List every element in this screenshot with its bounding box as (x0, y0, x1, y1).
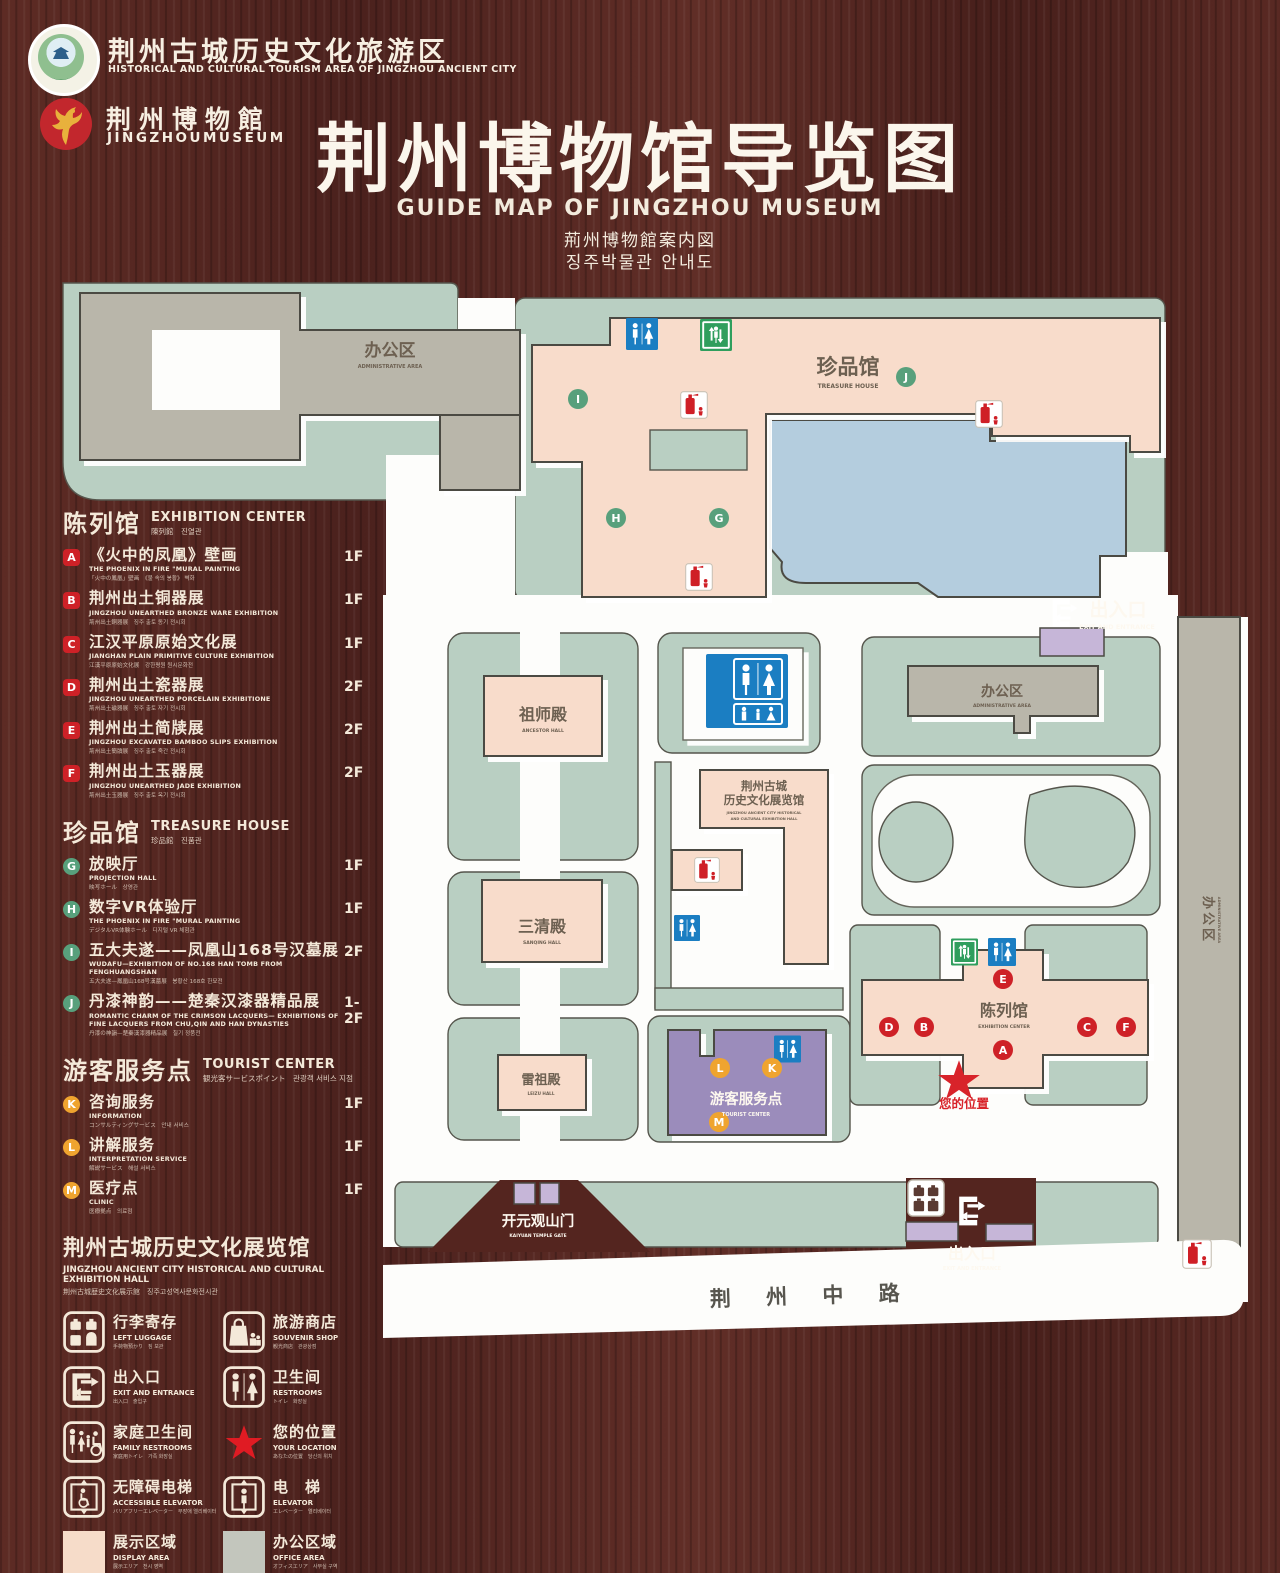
item-floor: 2F (344, 679, 378, 695)
svg-text:SANQING HALL: SANQING HALL (523, 940, 561, 946)
item-floor: 1F (344, 592, 378, 608)
icon-label-sub: 手荷物預かり 짐 보관 (113, 1343, 177, 1350)
legend-icon-item: 出入口 EXIT AND ENTRANCE 出入口 출입구 (63, 1366, 223, 1408)
gate-pillar (514, 1183, 535, 1204)
legend-item: A 《火中的凤凰》壁画 THE PHOENIX IN FIRE "MURAL P… (63, 547, 378, 582)
section-title-sub: 陳列館 진열관 (151, 526, 306, 537)
legend-item: D 荆州出土瓷器展 JINGZHOU UNEARTHED PORCELAIN E… (63, 677, 378, 712)
icon-label-en: DISPLAY AREA (113, 1554, 177, 1562)
item-name-cn: 荆州出土简牍展 (89, 720, 344, 736)
legend-icon-item: 展示区域 DISPLAY AREA 展示エリア 전시 영역 (63, 1531, 223, 1573)
svg-text:办公区: 办公区 (365, 340, 416, 361)
restroom-icon (774, 1036, 801, 1063)
map-badge-letter: C (1083, 1021, 1091, 1034)
item-floor: 2F (344, 765, 378, 781)
legend-icon-item: 电 梯 ELEVATOR エレベーター 엘리베이터 (223, 1476, 375, 1518)
item-name-sub: 荊州出土銅器展 징주 출토 동기 전시회 (89, 618, 344, 626)
restroom-icon (223, 1366, 265, 1408)
garden-island (879, 802, 953, 882)
svg-text:ADMINISTRATIVE AREA: ADMINISTRATIVE AREA (1217, 897, 1221, 944)
item-name-sub: 五大夫遂—鳳凰山168号漢墓展 봉황산 168호 한묘전 (89, 977, 344, 985)
item-letter-badge: L (63, 1139, 80, 1156)
legend-icon-item: 家庭卫生间 FAMILY RESTROOMS 家庭用トイレ 가족 화장실 (63, 1421, 223, 1463)
page-subtitle-ko: 징주박물관 안내도 (250, 248, 1030, 273)
section-title: 游客服务点 TOURIST CENTER 観光客サービスポイント 관광객 서비스… (63, 1051, 378, 1086)
item-name-sub: コンサルティングサービス 안내 서비스 (89, 1121, 344, 1129)
item-name-en: JIANGHAN PLAIN PRIMITIVE CULTURE EXHIBIT… (89, 652, 344, 660)
svg-text:珍品馆: 珍品馆 (817, 355, 880, 379)
svg-text:游客服务点: 游客服务点 (710, 1090, 783, 1108)
svg-text:EXIT AND ENTRANCE: EXIT AND ENTRANCE (1079, 623, 1155, 631)
svg-text:TOURIST CENTER: TOURIST CENTER (722, 1112, 770, 1118)
legend-item: G 放映厅 PROJECTION HALL 映写ホール 상영관 1F (63, 856, 378, 891)
item-name-sub: 荊州出土玉器展 징주 출토 옥기 전시회 (89, 791, 344, 799)
museum-logo (40, 98, 92, 150)
item-name-en: PROJECTION HALL (89, 874, 344, 882)
legend-item: L 讲解服务 INTERPRETATION SERVICE 解説サービス 해설 … (63, 1137, 378, 1172)
grounds-strip (655, 988, 843, 1010)
legend-item: J 丹漆神韵——楚秦汉漆器精品展 ROMANTIC CHARM OF THE C… (63, 993, 378, 1036)
svg-text:ADMINISTRATIVE AREA: ADMINISTRATIVE AREA (358, 364, 423, 370)
legend-item: E 荆州出土简牍展 JINGZHOU EXCAVATED BAMBOO SLIP… (63, 720, 378, 755)
exit-structure (906, 1222, 958, 1241)
legend-panel: 陈列馆 EXHIBITION CENTER 陳列館 진열관 A 《火中的凤凰》壁… (63, 504, 378, 1573)
grounds-strip (655, 762, 671, 1008)
section-title-sub: 珍品館 진품관 (151, 835, 290, 846)
item-name-en: INFORMATION (89, 1112, 344, 1120)
icon-label-en: YOUR LOCATION (273, 1444, 337, 1452)
page-title: 荆州博物馆导览图 (250, 98, 1030, 207)
svg-text:陈列馆: 陈列馆 (980, 1001, 1028, 1020)
icon-label-cn: 卫生间 (273, 1366, 322, 1387)
item-name-en: INTERPRETATION SERVICE (89, 1155, 344, 1163)
item-name-cn: 医疗点 (89, 1180, 344, 1196)
item-name-cn: 五大夫遂——凤凰山168号汉墓展 (89, 942, 344, 958)
section-title-en: TOURIST CENTER (203, 1057, 335, 1072)
svg-text:祖师殿: 祖师殿 (518, 705, 568, 724)
display-icon (63, 1531, 105, 1573)
svg-text:出入口: 出入口 (1089, 598, 1146, 621)
item-floor: 1F (344, 549, 378, 565)
item-name-cn: 《火中的凤凰》壁画 (89, 547, 344, 563)
svg-text:三清殿: 三清殿 (518, 917, 567, 936)
left-luggage-icon (908, 1180, 944, 1216)
icon-label-sub: エレベーター 엘리베이터 (273, 1508, 331, 1515)
section-title-cn: 陈列馆 (63, 504, 141, 539)
item-floor: 1-2F (344, 995, 378, 1027)
icon-label-cn: 无障碍电梯 (113, 1476, 216, 1497)
item-letter-badge: D (63, 679, 80, 696)
item-name-en: THE PHOENIX IN FIRE "MURAL PAINTING (89, 917, 344, 925)
item-name-en: JINGZHOU EXCAVATED BAMBOO SLIPS EXHIBITI… (89, 738, 344, 746)
item-floor: 1F (344, 636, 378, 652)
legend-item: B 荆州出土铜器展 JINGZHOU UNEARTHED BRONZE WARE… (63, 590, 378, 625)
icon-label-sub: バリアフリーエレベーター 무장애 엘리베이터 (113, 1508, 216, 1515)
legend-icon-item: 办公区域 OFFICE AREA オフィスエリア 사무실 구역 (223, 1531, 375, 1573)
section-title: 陈列馆 EXHIBITION CENTER 陳列館 진열관 (63, 504, 378, 539)
family-icon (63, 1421, 105, 1463)
fire-extinguisher-icon (695, 858, 720, 883)
item-name-en: JINGZHOU UNEARTHED BRONZE WARE EXHIBITIO… (89, 609, 344, 617)
item-name-en: JINGZHOU UNEARTHED JADE EXHIBITION (89, 782, 344, 790)
fire-extinguisher-icon (681, 392, 708, 419)
map-badge-letter: H (611, 512, 620, 525)
item-name-sub: 荊州出土磁器展 징주 출토 자기 전시회 (89, 704, 344, 712)
office-strip (1178, 617, 1240, 1302)
item-floor: 1F (344, 1182, 378, 1198)
icon-label-sub: あなたの位置 당신의 위치 (273, 1453, 337, 1460)
legend-icon-item: 行李寄存 LEFT LUGGAGE 手荷物預かり 짐 보관 (63, 1311, 223, 1353)
map-badge-letter: E (999, 973, 1007, 986)
elevator-icon (951, 939, 978, 966)
legend-icon-item: 无障碍电梯 ACCESSIBLE ELEVATOR バリアフリーエレベーター 무… (63, 1476, 223, 1518)
map-badge-letter: A (999, 1044, 1008, 1057)
section-title-en: EXHIBITION CENTER (151, 510, 306, 525)
icon-label-sub: 展示エリア 전시 영역 (113, 1563, 177, 1570)
svg-text:办公区: 办公区 (981, 683, 1023, 700)
item-floor: 2F (344, 944, 378, 960)
restroom-icon (674, 915, 700, 941)
item-name-cn: 咨询服务 (89, 1094, 344, 1110)
item-floor: 1F (344, 858, 378, 874)
svg-text:ANCESTOR HALL: ANCESTOR HALL (522, 728, 564, 734)
legend-icon-grid: 行李寄存 LEFT LUGGAGE 手荷物預かり 짐 보관 旅游商店 SOUVE… (63, 1311, 378, 1573)
hall-note-sub: 荆州古城歴史文化展示館 징주고성역사문화전시관 (63, 1287, 378, 1297)
item-letter-badge: M (63, 1182, 80, 1199)
icon-label-cn: 旅游商店 (273, 1311, 338, 1332)
icon-label-sub: トイレ 화장실 (273, 1398, 322, 1405)
svg-text:JINGZHOU ANCIENT CITY HISTORIC: JINGZHOU ANCIENT CITY HISTORICAL (726, 811, 803, 815)
item-name-cn: 丹漆神韵——楚秦汉漆器精品展 (89, 993, 344, 1009)
section-title-cn: 游客服务点 (63, 1051, 193, 1086)
legend-icon-item: 卫生间 RESTROOMS トイレ 화장실 (223, 1366, 375, 1408)
section-title-cn: 珍品馆 (63, 813, 141, 848)
svg-text:雷祖殿: 雷祖殿 (521, 1072, 561, 1088)
legend-icon-item: 您的位置 YOUR LOCATION あなたの位置 당신의 위치 (223, 1421, 375, 1463)
icon-label-cn: 办公区域 (273, 1531, 338, 1552)
section-title-sub: 観光客サービスポイント 관광객 서비스 지점 (203, 1073, 353, 1084)
svg-text:您的位置: 您的位置 (939, 1096, 990, 1111)
office-strip-path (1241, 617, 1248, 1302)
legend-item: K 咨询服务 INFORMATION コンサルティングサービス 안내 서비스 1… (63, 1094, 378, 1129)
map-badge-letter: D (884, 1021, 893, 1034)
item-name-sub: 医療拠点 의료점 (89, 1207, 344, 1215)
office-icon (223, 1531, 265, 1573)
svg-text:EXIT AND ENTRANCE: EXIT AND ENTRANCE (943, 1266, 1002, 1272)
elev-icon (223, 1476, 265, 1518)
page-subtitle-en: GUIDE MAP OF JINGZHOU MUSEUM (250, 196, 1030, 221)
item-letter-badge: H (63, 901, 80, 918)
item-letter-badge: G (63, 858, 80, 875)
item-letter-badge: A (63, 549, 80, 566)
item-name-cn: 放映厅 (89, 856, 344, 872)
star-icon (223, 1421, 265, 1463)
phoenix-icon (46, 103, 86, 147)
item-letter-badge: C (63, 636, 80, 653)
svg-text:办公区: 办公区 (1200, 896, 1216, 944)
icon-label-cn: 出入口 (113, 1366, 195, 1387)
item-name-sub: 解説サービス 해설 서비스 (89, 1164, 344, 1172)
item-name-cn: 江汉平原原始文化展 (89, 634, 344, 650)
item-name-cn: 数字VR体验厅 (89, 899, 344, 915)
fire-extinguisher-icon (1183, 1240, 1212, 1269)
item-letter-badge: J (63, 995, 80, 1012)
tourist-center-building (668, 1030, 826, 1135)
icon-label-sub: 家庭用トイレ 가족 화장실 (113, 1453, 193, 1460)
map-badge-letter: G (714, 512, 723, 525)
icon-label-en: EXIT AND ENTRANCE (113, 1389, 195, 1397)
item-name-cn: 荆州出土玉器展 (89, 763, 344, 779)
luggage-icon (63, 1311, 105, 1353)
item-name-sub: 映写ホール 상영관 (89, 883, 344, 891)
tourism-area-name-en: HISTORICAL AND CULTURAL TOURISM AREA OF … (108, 64, 517, 75)
item-name-en: THE PHOENIX IN FIRE "MURAL PAINTING (89, 565, 344, 573)
icon-label-sub: 出入口 출입구 (113, 1398, 195, 1405)
item-name-sub: 江漢平原原始文化展 강한평원 원시문화전 (89, 661, 344, 669)
section-title-en: TREASURE HOUSE (151, 819, 290, 834)
icon-label-en: RESTROOMS (273, 1389, 322, 1397)
legend-section-treasure-house: 珍品馆 TREASURE HOUSE 珍品館 진품관 G 放映厅 PROJECT… (63, 813, 378, 1037)
accelev-icon (63, 1476, 105, 1518)
guide-map-poster: { "colors":{ "wood":"#552621","map_green… (0, 0, 1280, 1451)
svg-text:开元观山门: 开元观山门 (502, 1212, 575, 1230)
item-name-cn: 荆州出土铜器展 (89, 590, 344, 606)
svg-text:LEIZU HALL: LEIZU HALL (527, 1091, 554, 1096)
svg-text:ADMINISTRATIVE AREA: ADMINISTRATIVE AREA (973, 703, 1032, 709)
restroom-icon (988, 938, 1016, 966)
exit-icon (63, 1366, 105, 1408)
legend-section-tourist-center: 游客服务点 TOURIST CENTER 観光客サービスポイント 관광객 서비스… (63, 1051, 378, 1216)
item-name-sub: 丹漆の神韻—楚秦漢漆器精品展 칠기 정품전 (89, 1029, 344, 1037)
item-name-en: WUDAFU—EXHIBITION OF NO.168 HAN TOMB FRO… (89, 960, 344, 976)
icon-label-sub: オフィスエリア 사무실 구역 (273, 1563, 338, 1570)
shop-icon (223, 1311, 265, 1353)
map-badge-letter: K (768, 1062, 777, 1075)
icon-label-cn: 行李寄存 (113, 1311, 177, 1332)
legend-item: C 江汉平原原始文化展 JIANGHAN PLAIN PRIMITIVE CUL… (63, 634, 378, 669)
icon-label-en: FAMILY RESTROOMS (113, 1444, 193, 1452)
item-floor: 1F (344, 901, 378, 917)
item-name-en: JINGZHOU UNEARTHED PORCELAIN EXHIBITIONE (89, 695, 344, 703)
icon-label-en: SOUVENIR SHOP (273, 1334, 338, 1342)
item-name-en: ROMANTIC CHARM OF THE CRIMSON LACQUERS— … (89, 1012, 344, 1028)
item-name-cn: 讲解服务 (89, 1137, 344, 1153)
legend-item: F 荆州出土玉器展 JINGZHOU UNEARTHED JADE EXHIBI… (63, 763, 378, 798)
svg-text:EXHIBITION CENTER: EXHIBITION CENTER (978, 1024, 1030, 1030)
map-badge-letter: F (1122, 1021, 1130, 1034)
map-badge-letter: J (903, 371, 908, 384)
item-floor: 2F (344, 722, 378, 738)
icon-label-cn: 展示区域 (113, 1531, 177, 1552)
item-name-sub: 荊州出土簡牘展 징주 출토 죽간 전시회 (89, 747, 344, 755)
map-badge-letter: L (716, 1062, 723, 1075)
hall-note-en: JINGZHOU ANCIENT CITY HISTORICAL AND CUL… (63, 1265, 378, 1285)
garden-island (1025, 786, 1135, 887)
treasure-courtyard (650, 430, 747, 470)
restroom-panel-icon (706, 654, 788, 728)
item-name-cn: 荆州出土瓷器展 (89, 677, 344, 693)
fire-extinguisher-icon (976, 401, 1003, 428)
restroom-icon (626, 318, 658, 350)
map-badge-letter: I (576, 393, 580, 406)
fire-extinguisher-icon (686, 564, 713, 591)
section-title: 珍品馆 TREASURE HOUSE 珍品館 진품관 (63, 813, 378, 848)
item-floor: 1F (344, 1139, 378, 1155)
legend-item: I 五大夫遂——凤凰山168号汉墓展 WUDAFU—EXHIBITION OF … (63, 942, 378, 985)
icon-label-sub: 観光商店 관광상점 (273, 1343, 338, 1350)
icon-label-en: OFFICE AREA (273, 1554, 338, 1562)
item-letter-badge: F (63, 765, 80, 782)
svg-text:KAIYUAN TEMPLE GATE: KAIYUAN TEMPLE GATE (509, 1233, 566, 1239)
svg-text:历史文化展览馆: 历史文化展览馆 (724, 793, 805, 807)
map-badge-letter: B (920, 1021, 928, 1034)
north-gate-structure (1040, 628, 1104, 656)
item-letter-badge: K (63, 1096, 80, 1113)
item-letter-badge: I (63, 944, 80, 961)
admin-courtyard (152, 330, 280, 410)
svg-text:TREASURE HOUSE: TREASURE HOUSE (818, 383, 879, 390)
item-letter-badge: E (63, 722, 80, 739)
exit-structure (986, 1224, 1033, 1241)
svg-text:AND CULTURAL EXHIBITION HALL: AND CULTURAL EXHIBITION HALL (731, 817, 799, 821)
svg-text:荆州古城: 荆州古城 (741, 779, 787, 793)
icon-label-en: LEFT LUGGAGE (113, 1334, 177, 1342)
item-name-sub: デジタルVR体験ホール 디지털 VR 체험관 (89, 926, 344, 934)
history-hall-note: 荆州古城历史文化展览馆 JINGZHOU ANCIENT CITY HISTOR… (63, 1231, 378, 1297)
item-floor: 1F (344, 1096, 378, 1112)
legend-icon-item: 旅游商店 SOUVENIR SHOP 観光商店 관광상점 (223, 1311, 375, 1353)
icon-label-en: ACCESSIBLE ELEVATOR (113, 1499, 216, 1507)
lake (770, 420, 1126, 597)
icon-label-cn: 您的位置 (273, 1421, 337, 1442)
gate-pillar (540, 1183, 559, 1204)
tourism-area-emblem (28, 24, 100, 96)
svg-text:出入口: 出入口 (948, 1244, 996, 1263)
icon-label-cn: 家庭卫生间 (113, 1421, 193, 1442)
legend-item: M 医疗点 CLINIC 医療拠点 의료점 1F (63, 1180, 378, 1215)
item-letter-badge: B (63, 592, 80, 609)
icon-label-cn: 电 梯 (273, 1476, 331, 1497)
legend-item: H 数字VR体验厅 THE PHOENIX IN FIRE "MURAL PAI… (63, 899, 378, 934)
icon-label-en: ELEVATOR (273, 1499, 331, 1507)
item-name-sub: 「火中の鳳凰」壁画 《불 속의 봉황》 벽화 (89, 574, 344, 582)
hall-note-cn: 荆州古城历史文化展览馆 (63, 1231, 378, 1262)
legend-section-exhibition-center: 陈列馆 EXHIBITION CENTER 陳列館 진열관 A 《火中的凤凰》壁… (63, 504, 378, 799)
item-name-en: CLINIC (89, 1198, 344, 1206)
elevator-icon (700, 319, 732, 351)
